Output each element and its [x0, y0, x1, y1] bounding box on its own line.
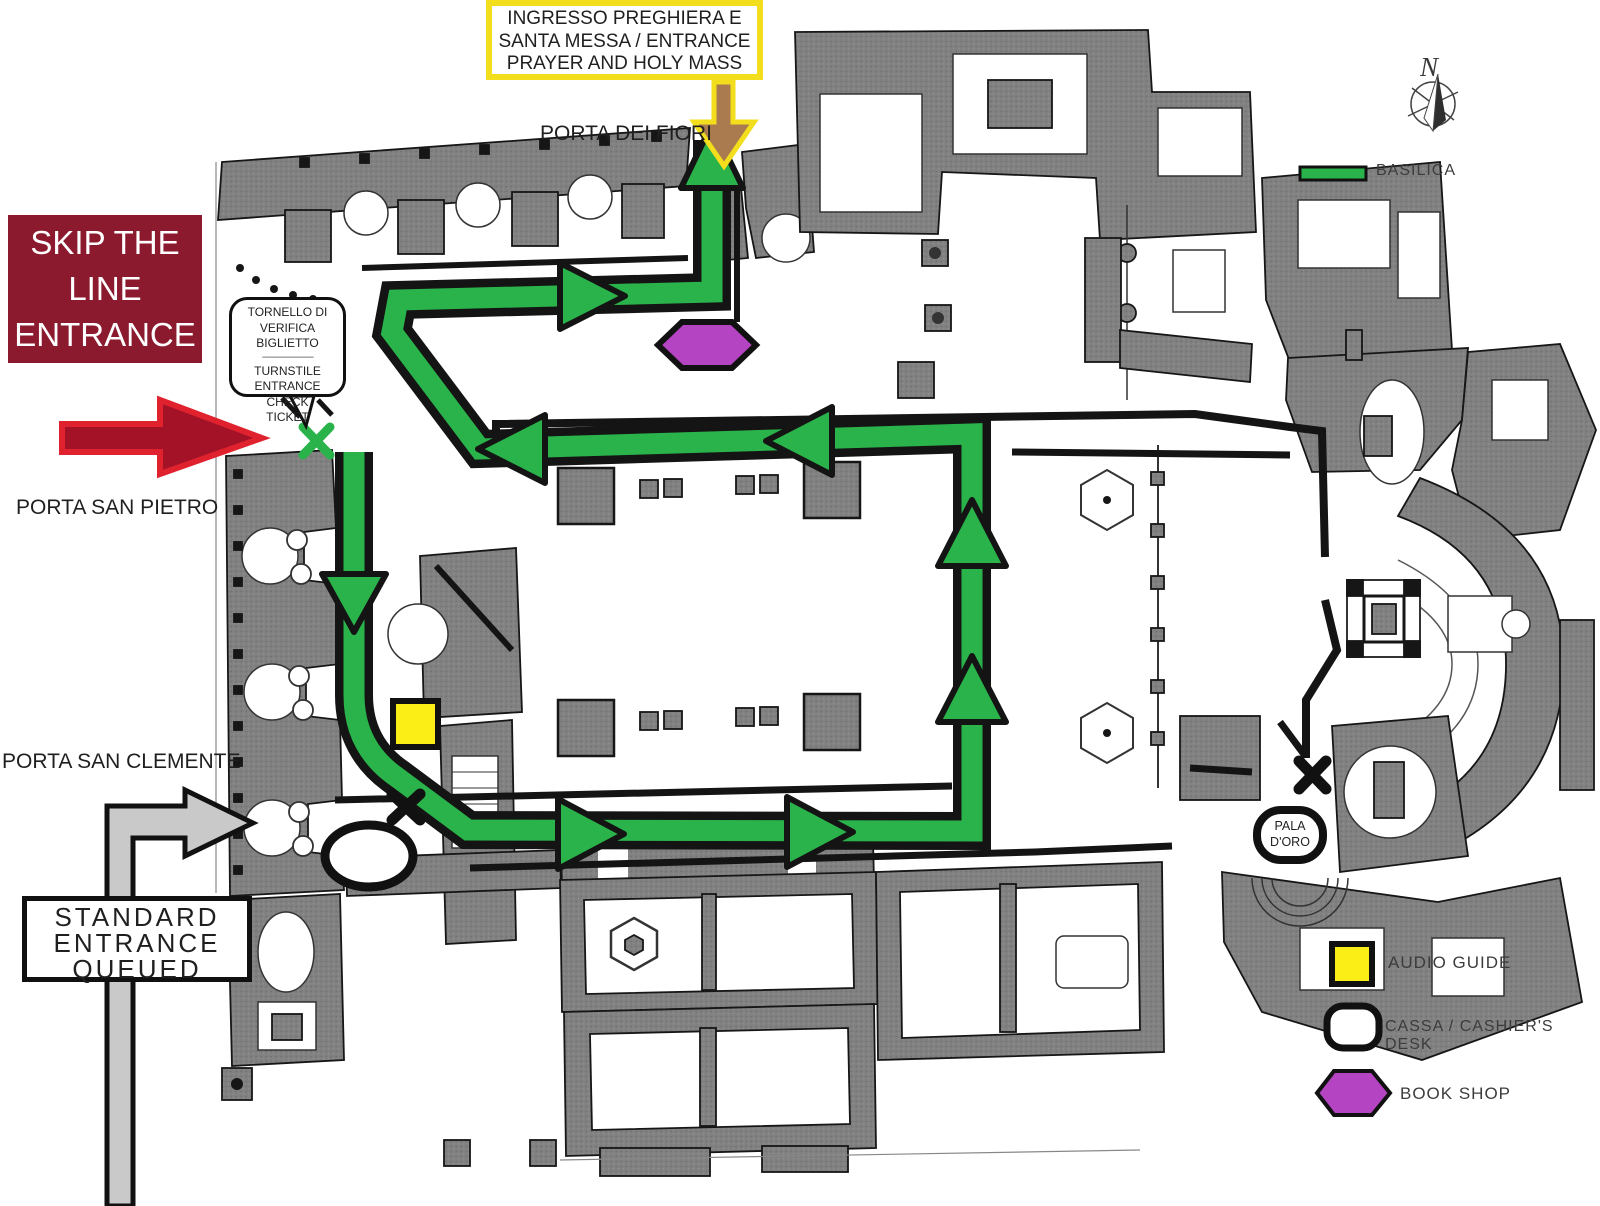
mass-entrance-line: PRAYER AND HOLY MASS [492, 53, 757, 76]
standard-entrance-box: STANDARD ENTRANCE QUEUED [22, 896, 252, 982]
legend-audio-guide-label: AUDIO GUIDE [1388, 953, 1511, 973]
skip-line-text: LINE [8, 266, 202, 312]
mass-entrance-box: INGRESSO PREGHIERA E SANTA MESSA / ENTRA… [486, 0, 763, 80]
compass-north-label: N [1420, 52, 1438, 83]
porta-san-pietro-label: PORTA SAN PIETRO [16, 496, 218, 520]
cassa-desk-marker [325, 825, 413, 887]
standard-entrance-text: ENTRANCE [27, 930, 247, 956]
skip-the-line-box: SKIP THE LINE ENTRANCE [8, 215, 202, 363]
route-arrow-up-2 [938, 500, 1006, 566]
legend-cassa-swatch [1327, 1006, 1379, 1048]
pala-doro-text: D'ORO [1257, 834, 1323, 850]
basilica-floorplan-map: INGRESSO PREGHIERA E SANTA MESSA / ENTRA… [0, 0, 1600, 1206]
book-shop-marker [658, 322, 756, 368]
route-arrow-right-exit [560, 263, 625, 329]
porta-san-clemente-label: PORTA SAN CLEMENTE [2, 750, 240, 774]
pala-doro-text: PALA [1257, 818, 1323, 834]
legend-basilica-label: BASILICA [1376, 162, 1456, 180]
route-arrow-up-1 [938, 656, 1006, 722]
turnstile-callout-text: TURNSTILE [232, 364, 343, 380]
audio-guide-marker [393, 701, 438, 747]
legend-basilica-swatch [1300, 167, 1366, 180]
turnstile-callout-divider: ---------------------- [232, 352, 343, 364]
no-entry-x-icon-east [1299, 761, 1326, 789]
mass-entrance-line: INGRESSO PREGHIERA E [492, 8, 757, 31]
mass-entrance-line: SANTA MESSA / ENTRANCE [492, 31, 757, 54]
skip-line-text: SKIP THE [8, 220, 202, 266]
standard-entrance-text: STANDARD [27, 904, 247, 930]
turnstile-callout-text: TORNELLO DI [232, 305, 343, 321]
floorplan-walls [216, 30, 1596, 1176]
legend-book-shop-label: BOOK SHOP [1400, 1084, 1511, 1104]
standard-entrance-text: QUEUED [27, 956, 247, 982]
floorplan-svg [0, 0, 1600, 1206]
turnstile-callout: TORNELLO DI VERIFICA BIGLIETTO ---------… [229, 297, 346, 397]
pala-doro-label: PALA D'ORO [1257, 818, 1323, 850]
legend-book-shop-swatch [1317, 1071, 1390, 1115]
skip-line-text: ENTRANCE [8, 312, 202, 358]
turnstile-callout-text: ENTRANCE CHECK [232, 379, 343, 410]
porta-dei-fiori-label: PORTA DEI FIORI [540, 122, 712, 146]
turnstile-callout-text: TICKET [232, 410, 343, 426]
legend-audio-guide-swatch [1332, 944, 1372, 984]
legend-cassa-label: CASSA / CASHIER'S DESK [1385, 1018, 1600, 1054]
turnstile-callout-text: VERIFICA BIGLIETTO [232, 321, 343, 352]
